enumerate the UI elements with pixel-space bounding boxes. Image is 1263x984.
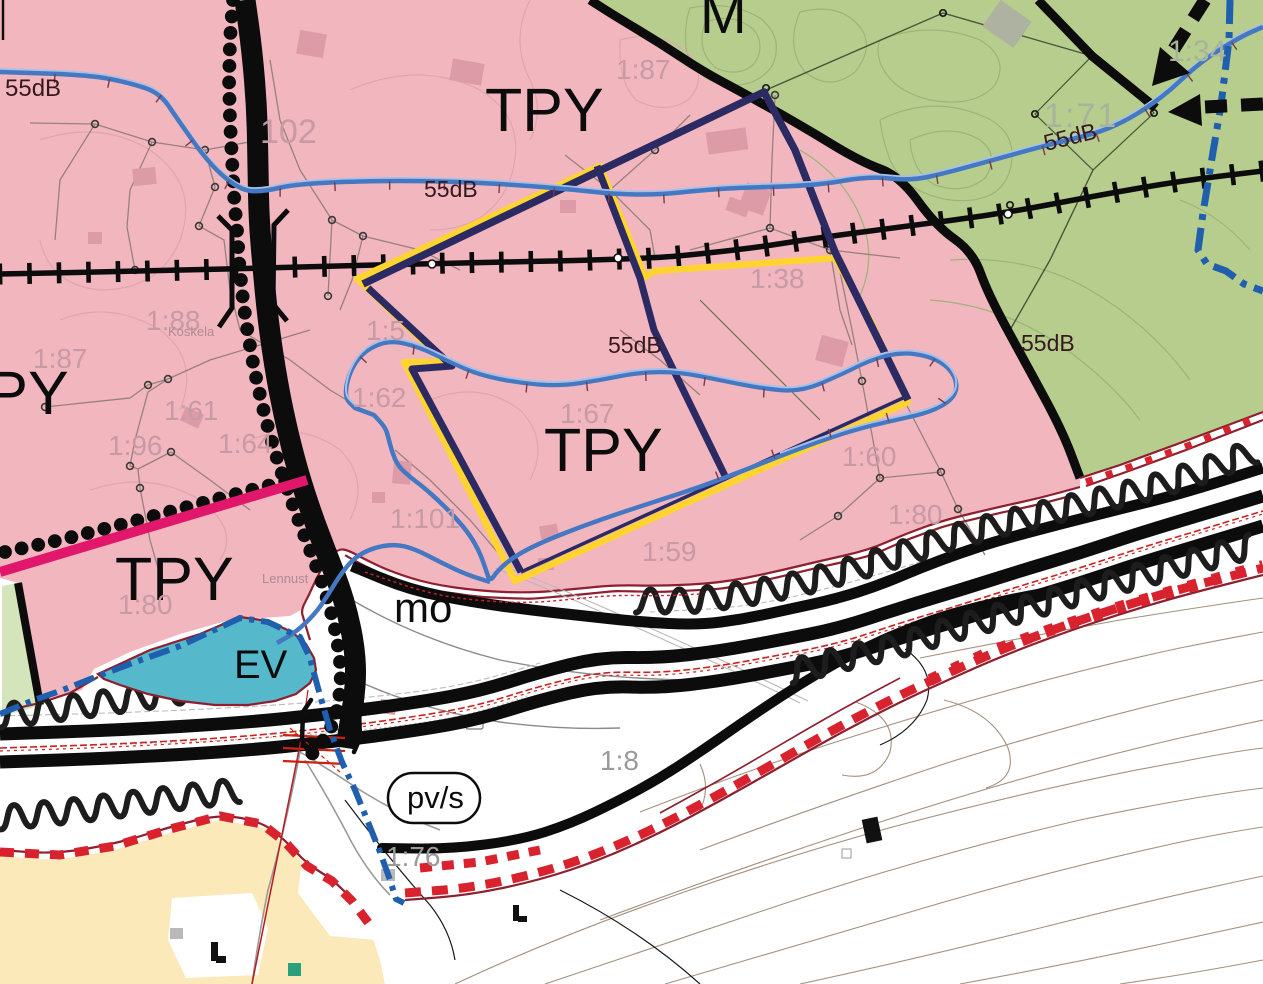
svg-text:55dB: 55dB [5, 75, 61, 102]
svg-text:1:87: 1:87 [33, 343, 88, 374]
svg-text:EV: EV [234, 643, 288, 687]
svg-text:Lennust: Lennust [262, 571, 309, 586]
svg-text:1:34: 1:34 [1168, 35, 1226, 68]
svg-text:1:80: 1:80 [118, 589, 173, 620]
svg-text:1:76: 1:76 [386, 841, 441, 872]
svg-text:TPY: TPY [485, 76, 604, 144]
svg-text:Koskela: Koskela [168, 324, 215, 339]
svg-text:102: 102 [260, 113, 317, 151]
svg-text:55dB: 55dB [424, 176, 478, 202]
svg-text:1:59: 1:59 [642, 536, 697, 567]
svg-text:1:60: 1:60 [842, 441, 897, 472]
svg-text:pv/s: pv/s [407, 780, 464, 815]
svg-text:1:67: 1:67 [560, 398, 615, 429]
svg-text:1:87: 1:87 [616, 54, 671, 85]
svg-text:1:61: 1:61 [164, 395, 219, 426]
svg-text:1:62: 1:62 [352, 382, 407, 413]
svg-text:M: M [700, 0, 747, 45]
svg-text:1:38: 1:38 [750, 263, 805, 294]
svg-text:1:64: 1:64 [218, 428, 273, 459]
svg-text:1:8: 1:8 [600, 745, 639, 776]
svg-text:1:80: 1:80 [888, 499, 943, 530]
svg-text:1:101: 1:101 [390, 503, 460, 534]
svg-text:55dB: 55dB [608, 332, 662, 358]
svg-text:1:5: 1:5 [366, 315, 405, 346]
svg-text:1:96: 1:96 [108, 430, 163, 461]
svg-text:55dB: 55dB [1021, 330, 1075, 356]
